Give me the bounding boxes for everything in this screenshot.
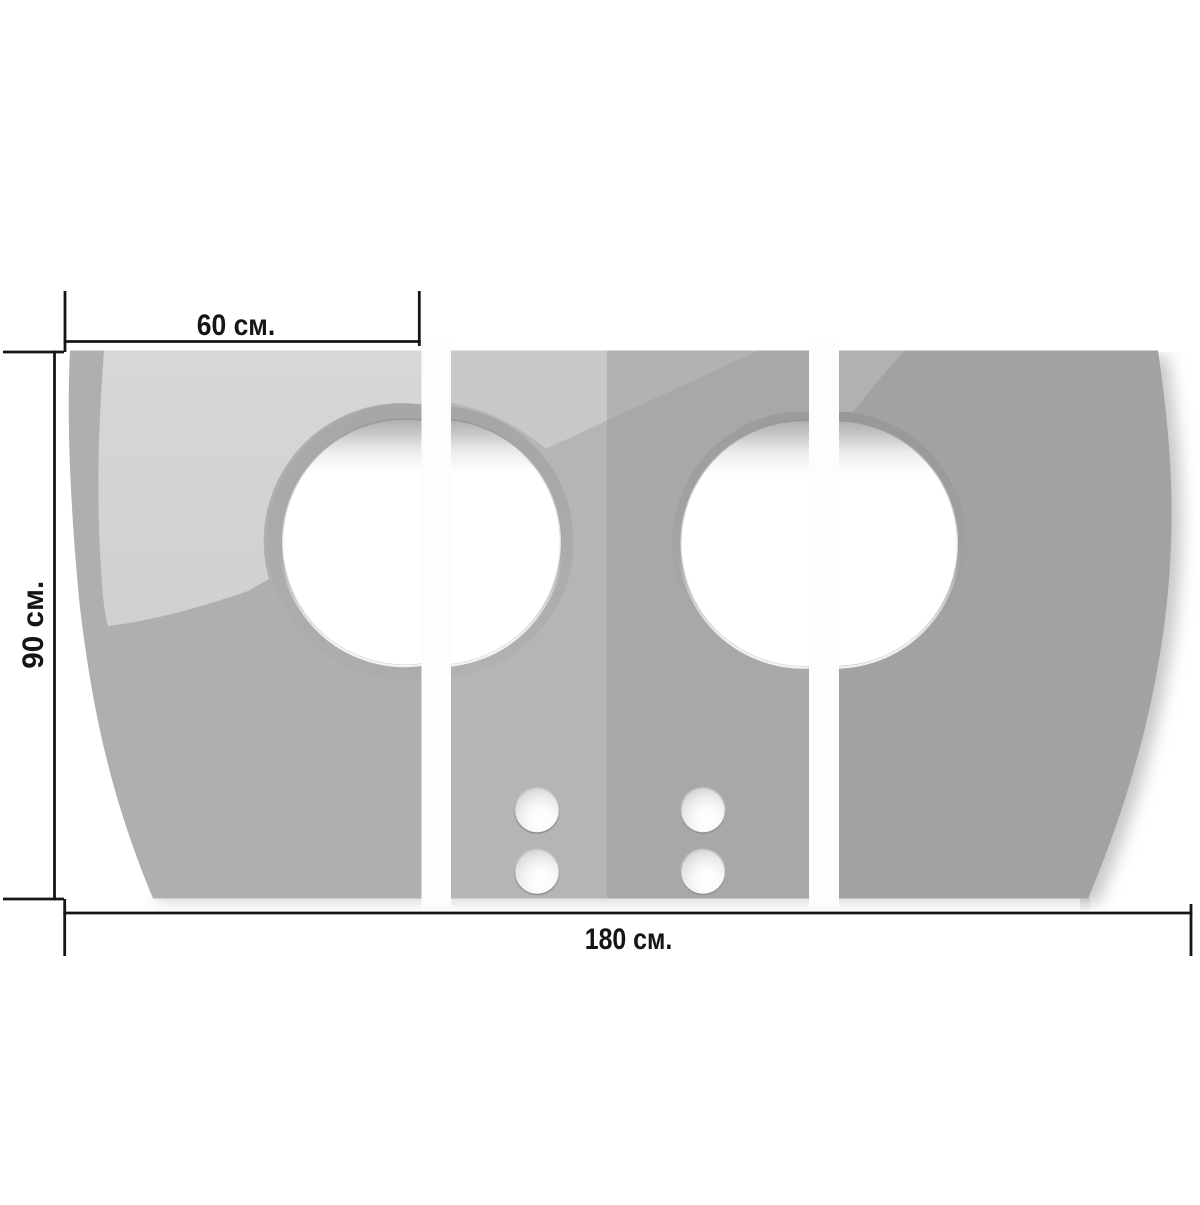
svg-text:180 см.: 180 см. <box>585 923 673 956</box>
svg-text:90 см.: 90 см. <box>17 581 50 669</box>
svg-text:60 см.: 60 см. <box>197 309 276 342</box>
